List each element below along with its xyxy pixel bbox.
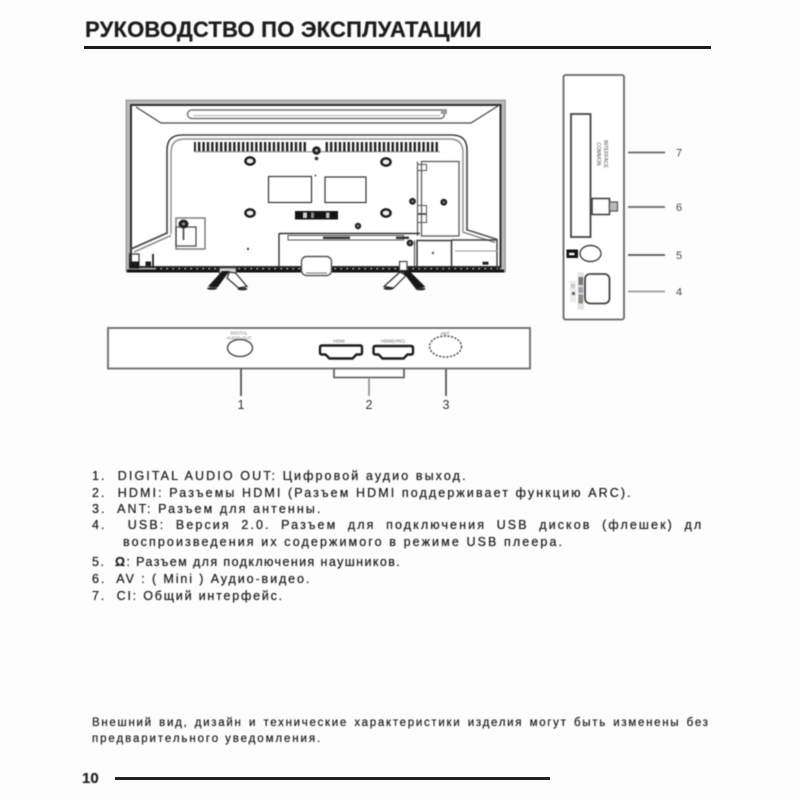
svg-text:HDMI: HDMI [333, 339, 345, 344]
svg-text:6: 6 [676, 202, 682, 214]
svg-text:COMMON: COMMON [595, 142, 601, 166]
svg-text:HDMI(ARC): HDMI(ARC) [381, 339, 405, 344]
svg-text:1: 1 [238, 398, 245, 412]
svg-text:ANT: ANT [441, 331, 450, 336]
svg-text:7: 7 [676, 148, 682, 160]
svg-text:3: 3 [443, 398, 450, 412]
svg-text:5: 5 [676, 250, 682, 262]
svg-text:INTERFACE: INTERFACE [602, 140, 608, 169]
svg-text:4: 4 [676, 287, 682, 299]
svg-text:2: 2 [366, 398, 373, 412]
